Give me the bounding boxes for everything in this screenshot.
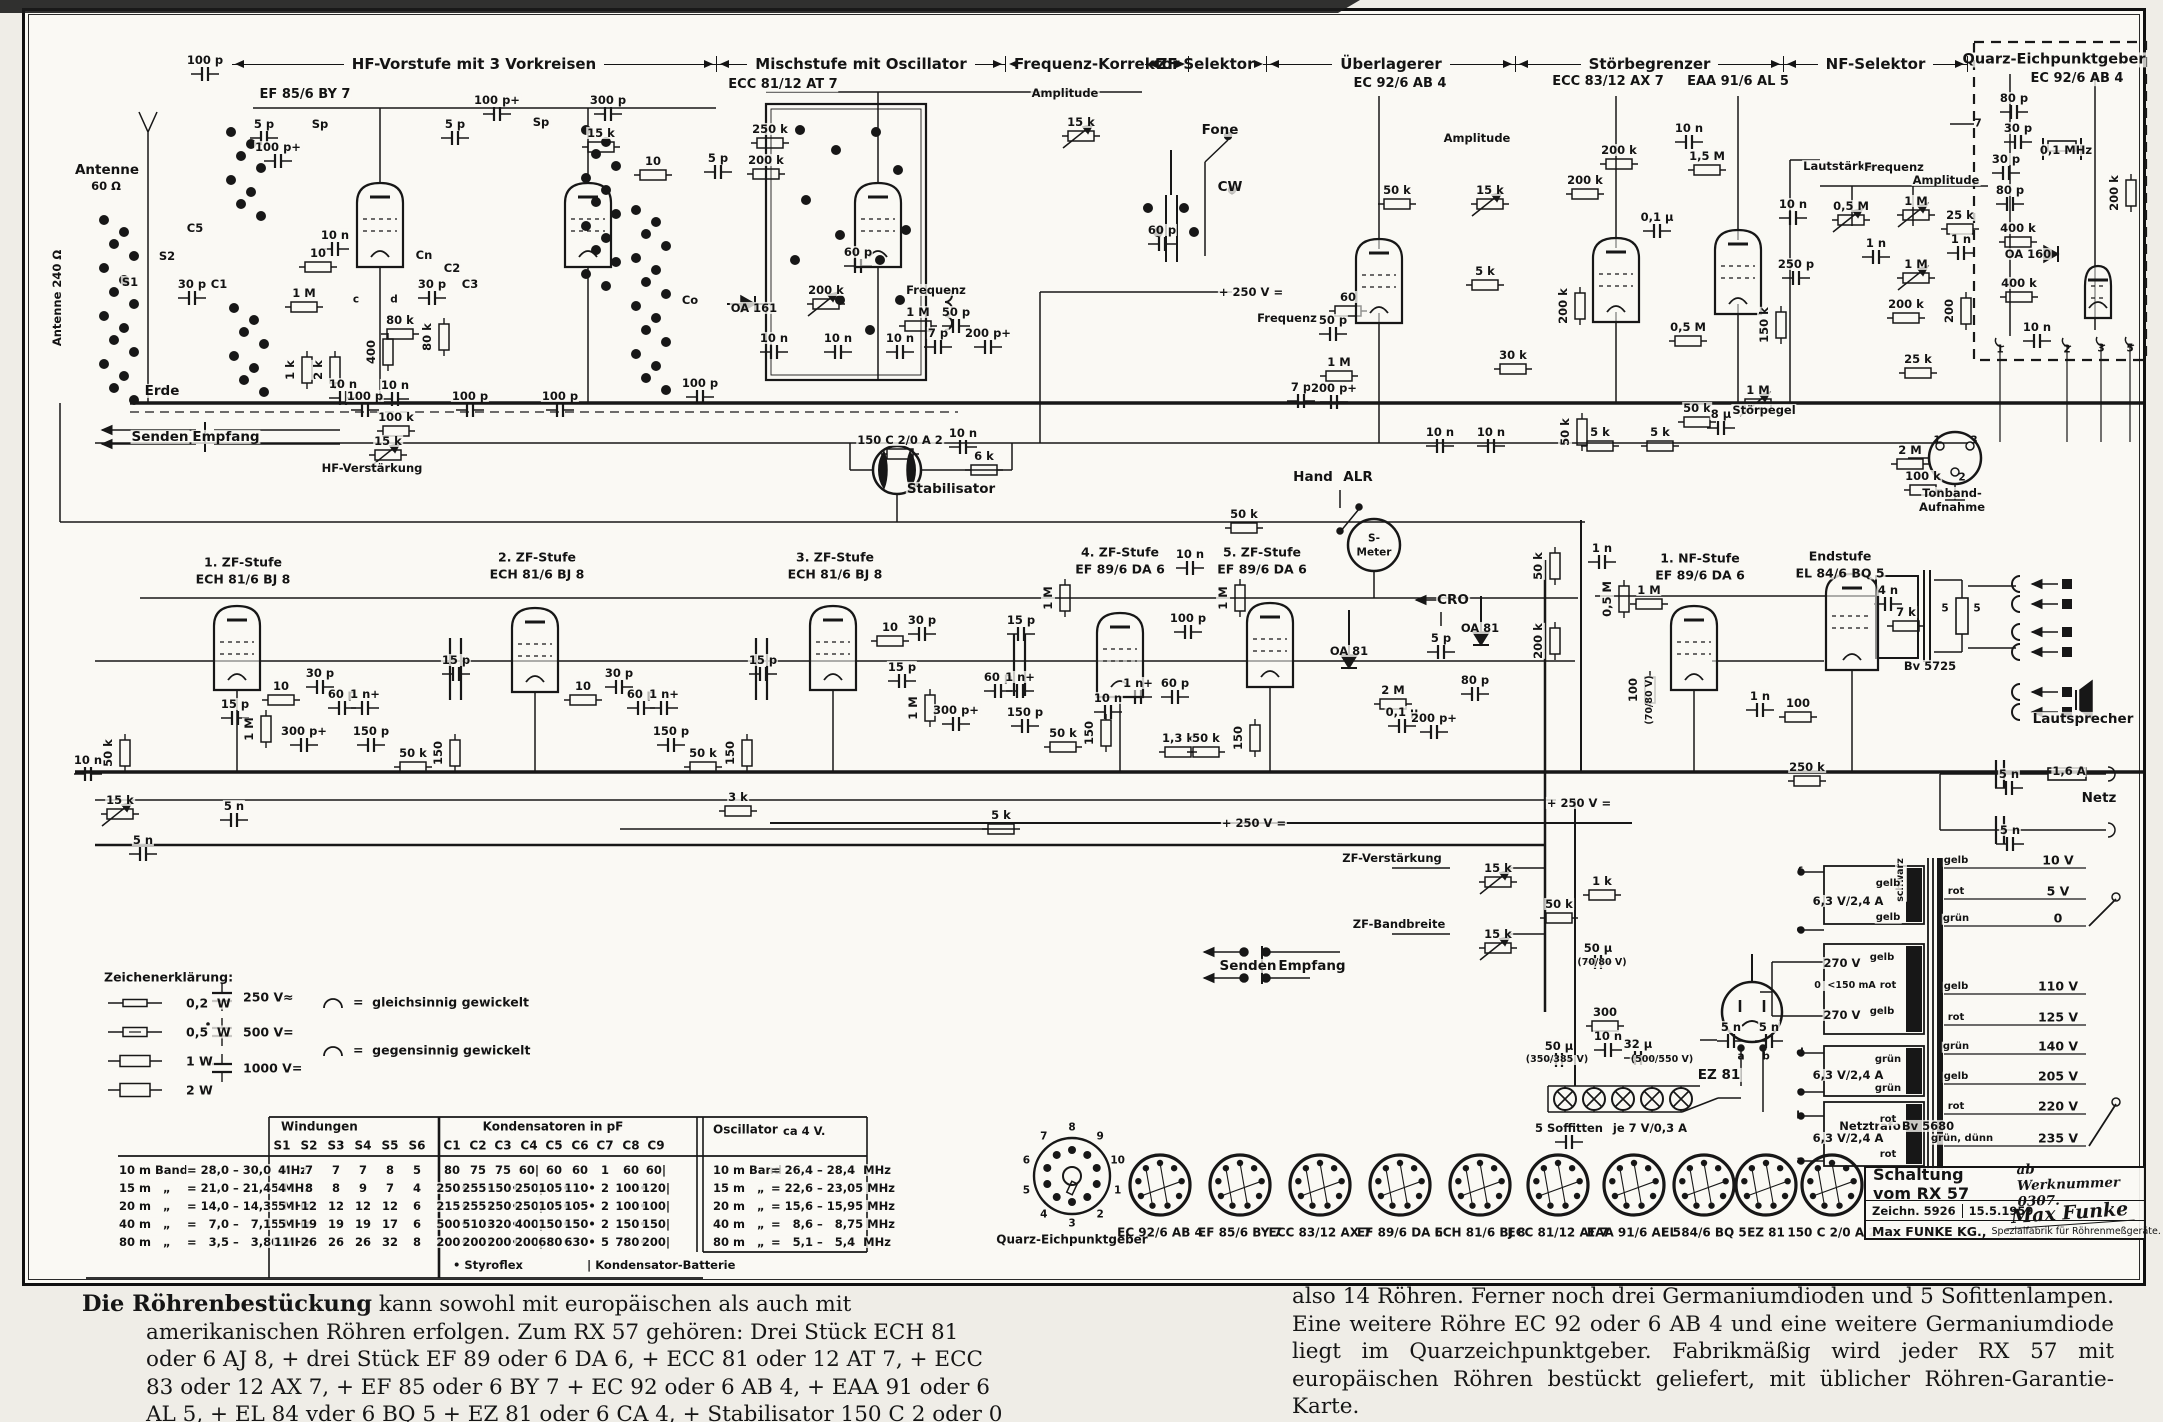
component-label: 10	[272, 680, 290, 692]
section-label: ZF-Selektor	[1148, 55, 1262, 73]
component-label: 15 p	[220, 698, 250, 710]
socket-pin-number: 6	[1022, 1156, 1031, 1167]
component-label: 50 k	[1048, 727, 1078, 739]
legend-capacitor-label: 500 V=	[242, 1025, 295, 1038]
component-label: 60 p	[843, 246, 873, 258]
legend-winding-label: = gleichsinnig gewickelt	[352, 995, 530, 1008]
wire-color-label: grün	[1874, 1084, 1902, 1095]
component-label: Quarz-Eichpunktgeber	[1961, 52, 2146, 67]
component-label: 15 k	[1483, 928, 1513, 940]
component-label: Empfang	[191, 430, 260, 444]
osc-band-name: 20 m „	[712, 1200, 766, 1212]
wire-color-label: gelb	[1943, 982, 1970, 993]
legend-capacitor-label: 250 V≈	[242, 990, 295, 1003]
component-label: 6,3 V/2,4 A	[1812, 895, 1885, 907]
kondensator-value: 630•	[563, 1236, 596, 1248]
component-label: Antenne	[74, 163, 140, 177]
pin-label: 5	[1940, 603, 1949, 614]
component-label: 30 p	[2003, 122, 2033, 134]
component-label: 1 n	[1950, 233, 1972, 245]
component-label: 140 V	[2037, 1039, 2079, 1052]
pin-label: 2	[1957, 472, 1966, 483]
component-label: OA 81	[1329, 645, 1369, 657]
component-label: 10	[309, 247, 327, 259]
component-label: 15 k	[1066, 116, 1096, 128]
component-label: HF-Verstärkung	[321, 462, 424, 474]
component-label: 3 k	[727, 791, 749, 803]
wire-color-label: rot	[1879, 1150, 1898, 1161]
firm-name: Max FUNKE KG.,	[1872, 1224, 1986, 1239]
footer-paragraph-right: also 14 Röhren. Ferner noch drei Germani…	[1292, 1283, 2114, 1421]
component-label: 7 p	[927, 327, 949, 339]
windungen-value: 12	[300, 1200, 318, 1212]
band-name: 80 m „	[118, 1236, 172, 1248]
component-label: 60 p	[1160, 677, 1190, 689]
windungen-value: 7	[331, 1164, 341, 1176]
wire-color-label: gelb	[1875, 913, 1902, 924]
legend-resistor-label: 0,5 W	[185, 1025, 232, 1038]
table-header-osc-voltage: ca 4 V.	[782, 1125, 826, 1137]
footer-paragraph-left: Die Röhrenbestückung kann sowohl mit eur…	[82, 1290, 1012, 1422]
component-label: 5 n	[1998, 768, 2020, 780]
component-label: 100 p	[541, 390, 579, 402]
pin-label: 3	[2096, 343, 2105, 354]
table-col-header: C1	[442, 1140, 461, 1153]
windungen-value: 9	[358, 1182, 368, 1194]
component-label: 2. ZF-Stufe	[497, 550, 577, 563]
arrow-right-icon	[1718, 64, 1783, 65]
windungen-value: 7	[358, 1164, 368, 1176]
component-label: + 250 V =	[1218, 286, 1284, 298]
component-label: Amplitude	[1443, 132, 1512, 144]
legend-resistor-label: 1 W	[185, 1054, 214, 1067]
component-label: 100 p+	[254, 141, 302, 153]
pin-label: b	[1795, 1110, 1805, 1121]
component-label: 50 k	[1191, 732, 1221, 744]
component-label: ECC 83/12 AX 7	[1551, 75, 1665, 89]
component-label: + 250 V =	[1221, 817, 1287, 829]
component-label: 200 k	[747, 154, 785, 166]
wire-color-label: grün, dünn	[1930, 1134, 1994, 1145]
wire-color-label: rot	[1947, 1102, 1966, 1113]
component-label: CRO	[1436, 593, 1470, 607]
component-label: OA 161	[730, 302, 778, 314]
component-label: 1. ZF-Stufe	[203, 555, 283, 568]
windungen-value: 7	[385, 1182, 395, 1194]
component-label: Endstufe	[1808, 549, 1873, 562]
arrow-left-icon	[1784, 64, 1818, 65]
section-arrow: Frequenz-Korrektor	[1006, 56, 1145, 72]
pin-label: a	[1736, 1051, 1745, 1062]
component-label: ECH 81/6 BJ 8	[489, 567, 586, 580]
wire-color-label: rot	[1879, 1115, 1898, 1126]
component-label: 10 n	[948, 427, 978, 439]
section-arrow: Überlagerer	[1267, 56, 1516, 72]
kondensator-value: 120|	[641, 1182, 671, 1194]
component-label: 0,1 MHz	[2039, 144, 2093, 156]
wire-color-label: grün	[1942, 914, 1970, 925]
socket-label: EZ 81	[1746, 1227, 1786, 1240]
component-label: 1 n	[1591, 542, 1613, 554]
component-label: 2 M	[1380, 684, 1405, 696]
component-label: EZ 81	[1697, 1068, 1742, 1082]
table-col-header: C6	[570, 1140, 589, 1153]
component-label: 1 M	[1903, 258, 1928, 270]
component-label: 10 n	[380, 379, 410, 391]
band-frequency: = 21,0 – 21,45 MHz	[186, 1182, 312, 1194]
component-label: 30 k	[1498, 349, 1528, 361]
socket-pin-number: 7	[1039, 1132, 1048, 1143]
component-label: 1 k	[1591, 875, 1613, 887]
arrow-right-icon	[1933, 64, 1967, 65]
component-label: 250 p	[1777, 258, 1815, 270]
component-label: 50 k	[1382, 184, 1412, 196]
windungen-value: 6	[412, 1200, 422, 1212]
component-label: 1 M	[1636, 584, 1661, 596]
drawing-number: Zeichn. 5926	[1866, 1204, 1963, 1218]
wire-color-label: rot	[1947, 1013, 1966, 1024]
table-col-header: C5	[544, 1140, 563, 1153]
component-label: 200 k	[1556, 288, 1570, 324]
component-label: 6,3 V/2,4 A	[1812, 1132, 1885, 1144]
component-label: EF 85/6 BY 7	[259, 88, 352, 102]
kondensator-value: 60	[545, 1164, 563, 1176]
component-label: Co	[681, 294, 699, 306]
section-arrow: ZF-Selektor	[1145, 56, 1267, 72]
windungen-value: 12	[381, 1200, 399, 1212]
component-label: S1	[121, 276, 139, 288]
band-frequency: = 28,0 – 30,0 MHz	[186, 1164, 308, 1176]
component-label: + 250 V =	[1546, 797, 1612, 809]
component-label: 4 n	[1877, 584, 1899, 596]
component-label: ECH 81/6 BJ 8	[787, 567, 884, 580]
component-label: 5 k	[1474, 265, 1496, 277]
section-label: NF-Selektor	[1818, 55, 1934, 73]
kondensator-value: 5	[600, 1236, 610, 1248]
footer-left-heading: Die Röhrenbestückung	[82, 1291, 372, 1317]
component-label: 10 n	[1778, 198, 1808, 210]
component-label: 200	[1942, 299, 1956, 323]
component-label: 10 n	[1476, 426, 1506, 438]
component-label: Bv 5680	[1901, 1120, 1955, 1132]
component-label: (500/550 V)	[1630, 1055, 1694, 1065]
component-label: 1. NF-Stufe	[1659, 551, 1740, 564]
component-label: 10 n	[1425, 426, 1455, 438]
component-label: 5 n	[223, 800, 245, 812]
component-label: 1 M	[1903, 195, 1928, 207]
component-label: Cn	[415, 249, 434, 261]
table-col-header: S6	[408, 1140, 427, 1153]
table-col-header: S4	[354, 1140, 373, 1153]
section-arrow: Mischstufe mit Oscillator	[717, 56, 1006, 72]
annotation-layer: HF-Vorstufe mit 3 VorkreisenMischstufe m…	[0, 0, 2163, 1422]
component-label: 6,3 V/2,4 A	[1812, 1069, 1885, 1081]
component-label: 5 k	[1649, 426, 1671, 438]
windungen-value: 7	[304, 1164, 314, 1176]
socket-pin-number: 8	[1067, 1122, 1076, 1133]
component-label: 30 p	[417, 278, 447, 290]
pin-label: 7	[1973, 118, 1982, 129]
component-label: 10	[574, 680, 592, 692]
windungen-value: 26	[327, 1236, 345, 1248]
socket-pin-number: 10	[1109, 1156, 1126, 1167]
wire-color-label: grün	[1874, 1055, 1902, 1066]
socket-pin-number: 3	[1067, 1218, 1076, 1229]
component-label: 1 M	[1745, 384, 1770, 396]
pin-label: 5	[1972, 603, 1981, 614]
arrow-left-icon	[232, 64, 344, 65]
component-label: 50 k	[1544, 898, 1574, 910]
component-label: 5 k	[990, 809, 1012, 821]
component-label: 150	[723, 741, 737, 765]
windungen-value: 8	[385, 1164, 395, 1176]
component-label: 15 k	[1475, 184, 1505, 196]
component-label: 150 p	[652, 725, 690, 737]
component-label: 10 n	[1175, 548, 1205, 560]
component-label: 6 k	[973, 450, 995, 462]
component-label: 200 k	[1566, 174, 1604, 186]
component-label: 0 <150 mA	[1813, 981, 1877, 991]
table-col-header: C2	[468, 1140, 487, 1153]
table-col-header: S5	[381, 1140, 400, 1153]
component-label: 150 p	[352, 725, 390, 737]
component-label: 15 p	[748, 654, 778, 666]
socket-pin-number: 5	[1022, 1185, 1031, 1196]
component-label: 1 n+	[1004, 671, 1036, 683]
kondensator-value: 80	[443, 1164, 461, 1176]
table-header-oscillator: Oscillator	[712, 1124, 779, 1137]
wire-color-label: gelb	[1869, 1007, 1896, 1018]
component-label: 1 n+	[349, 688, 381, 700]
wire-color-label: rot	[1879, 981, 1898, 992]
pin-label: 5	[2125, 343, 2134, 354]
component-label: 1 n+	[1122, 677, 1154, 689]
component-label: 1 M	[905, 306, 930, 318]
component-label: 1,3 k	[1161, 732, 1195, 744]
component-label: Sp	[532, 116, 551, 128]
pin-label: 3	[1969, 435, 1978, 446]
osc-frequency: = 8,6 – 8,75 MHz	[770, 1218, 896, 1230]
arrow-left-icon	[1516, 64, 1581, 65]
component-label: 200 k	[1600, 144, 1638, 156]
component-label: 300 p+	[280, 725, 328, 737]
component-label: 50 k	[398, 747, 428, 759]
component-label: 5 p	[1430, 632, 1452, 644]
component-label: 235 V	[2037, 1131, 2079, 1144]
component-label: C2	[443, 262, 461, 274]
component-label: 10	[644, 155, 662, 167]
windungen-value: 5	[277, 1200, 287, 1212]
component-label: 270 V	[1823, 957, 1862, 969]
component-label: Amplitude	[1031, 87, 1100, 99]
component-label: 5 p	[444, 118, 466, 130]
component-label: 250 k	[1788, 761, 1826, 773]
component-label: 400	[364, 340, 378, 364]
component-label: 10 n	[885, 332, 915, 344]
arrow-left-icon	[717, 64, 747, 65]
legend-capacitor-label: 1000 V=	[242, 1061, 303, 1074]
table-col-header: C8	[621, 1140, 640, 1153]
wire-color-label: rot	[1947, 887, 1966, 898]
windungen-value: 11	[273, 1236, 291, 1248]
component-label: 7 k	[1895, 606, 1917, 618]
component-label: 1,5 M	[1688, 150, 1726, 162]
component-label: 8 µ	[1710, 408, 1732, 420]
component-label: 15 p	[1006, 614, 1036, 626]
component-label: Tonband-	[1921, 487, 1983, 499]
component-label: Stabilisator	[906, 482, 996, 496]
component-label: Empfang	[1277, 959, 1346, 973]
table-col-header: S2	[300, 1140, 319, 1153]
component-label: 110 V	[2037, 979, 2079, 992]
schematic-page: HF-Vorstufe mit 3 VorkreisenMischstufe m…	[0, 0, 2163, 1422]
component-label: 150	[1082, 721, 1096, 745]
component-label: 60	[1339, 291, 1357, 303]
component-label: (350/385 V)	[1525, 1055, 1589, 1065]
component-label: 25 k	[1903, 353, 1933, 365]
component-label: 200 k	[1531, 623, 1545, 659]
windungen-value: 4	[412, 1182, 422, 1194]
component-label: 80 p	[1460, 674, 1490, 686]
component-label: 10 n	[1093, 692, 1123, 704]
component-label: Amplitude	[1912, 174, 1981, 186]
osc-band-name: 15 m „	[712, 1182, 766, 1194]
component-label: 4. ZF-Stufe	[1080, 545, 1160, 558]
component-label: 10 n	[320, 229, 350, 241]
osc-band-name: 80 m „	[712, 1236, 766, 1248]
band-name: 40 m „	[118, 1218, 172, 1230]
section-label: Störbegrenzer	[1581, 55, 1719, 73]
component-label: Frequenz	[1256, 312, 1318, 324]
component-label: Sp	[311, 118, 330, 130]
pin-label: c	[1796, 1086, 1804, 1097]
component-label: (70/80 V)	[1576, 958, 1627, 968]
component-label: (70/80 V)	[1644, 675, 1656, 724]
component-label: 1 n	[1865, 237, 1887, 249]
component-label: 1,6 A	[2051, 765, 2086, 777]
band-frequency: = 3,5 – 3,80 MHz	[186, 1236, 312, 1248]
socket-label: EL 84/6 BQ 5	[1660, 1227, 1748, 1240]
component-label: Netz	[2081, 791, 2118, 805]
kondensator-value: 2	[600, 1200, 610, 1212]
component-label: 5 V	[2046, 884, 2071, 897]
component-label: C1	[210, 278, 228, 290]
pin-label: 2	[2062, 344, 2071, 355]
component-label: Bv 5725	[1903, 660, 1957, 672]
component-label: 2 M	[1897, 444, 1922, 456]
component-label: Senden	[131, 430, 190, 444]
component-label: ZF-Bandbreite	[1352, 918, 1447, 930]
band-name: 10 m Band	[118, 1164, 189, 1176]
section-arrow: HF-Vorstufe mit 3 Vorkreisen	[232, 56, 717, 72]
component-label: 0,1 µ	[1640, 211, 1675, 223]
table-note-styroflex: • Styroflex	[452, 1259, 524, 1271]
component-label: 150	[1231, 726, 1245, 750]
component-label: 5 n	[1758, 1021, 1780, 1033]
component-label: 10 V	[2041, 853, 2074, 866]
component-label: 100 p	[451, 390, 489, 402]
section-label: Überlagerer	[1332, 55, 1450, 73]
component-label: 10 n	[759, 332, 789, 344]
pin-label: 1	[1932, 435, 1941, 446]
table-note-batterie: | Kondensator-Batterie	[586, 1259, 736, 1271]
component-label: 10 n	[1674, 122, 1704, 134]
component-label: 1 n+	[648, 688, 680, 700]
component-label: 80 p	[1995, 184, 2025, 196]
windungen-value: 19	[300, 1218, 318, 1230]
component-label: 30 p	[305, 667, 335, 679]
windungen-value: 8	[331, 1182, 341, 1194]
component-label: EF 89/6 DA 6	[1074, 562, 1166, 575]
osc-frequency: = 22,6 – 23,05 MHz	[770, 1182, 896, 1194]
component-label: 0,5 M	[1669, 321, 1707, 333]
kondensator-value: 2	[600, 1182, 610, 1194]
component-label: 100 p	[1169, 612, 1207, 624]
kondensator-value: 150•	[563, 1218, 596, 1230]
component-label: 32 µ	[1623, 1038, 1653, 1050]
arrow-right-icon	[604, 64, 716, 65]
component-label: 25 k	[1945, 209, 1975, 221]
component-label: EC 92/6 AB 4	[1353, 77, 1448, 91]
table-col-header: C7	[595, 1140, 614, 1153]
component-label: 200 p+	[1310, 382, 1358, 394]
band-frequency: = 7,0 – 7,15 MHz	[186, 1218, 312, 1230]
windungen-value: 26	[300, 1236, 318, 1248]
windungen-value: 26	[354, 1236, 372, 1248]
component-label: 50 k	[1558, 418, 1572, 446]
component-label: 150	[431, 741, 445, 765]
component-label: 220 V	[2037, 1099, 2079, 1112]
component-label: 1 M	[906, 696, 920, 719]
component-label: C5	[186, 222, 204, 234]
pin-label: Meter	[1356, 547, 1393, 558]
windungen-value: 8	[304, 1182, 314, 1194]
component-label: 100 p+	[473, 94, 521, 106]
component-label: ECC 81/12 AT 7	[727, 78, 838, 92]
component-label: 1 M	[291, 287, 316, 299]
component-label: CW	[1217, 180, 1244, 194]
component-label: 100	[1785, 697, 1811, 709]
arrow-right-icon	[975, 64, 1005, 65]
component-label: S2	[158, 250, 176, 262]
component-label: EL 84/6 BQ 5	[1794, 566, 1885, 579]
component-label: 0,5 M	[1600, 581, 1614, 617]
kondensator-value: 200|	[641, 1236, 671, 1248]
component-label: 1 M	[242, 717, 256, 740]
component-label: ALR	[1342, 470, 1373, 484]
osc-band-name: 40 m „	[712, 1218, 766, 1230]
component-label: 1 M	[1041, 586, 1055, 609]
component-label: OA 81	[1460, 622, 1500, 634]
arrow-left-icon	[1145, 64, 1148, 65]
windungen-value: 17	[381, 1218, 399, 1230]
quarz-socket-label: Quarz-Eichpunktgeber	[995, 1234, 1148, 1247]
component-label: 5 Soffitten	[1534, 1122, 1604, 1134]
band-name: 20 m „	[118, 1200, 172, 1212]
band-name: 15 m „	[118, 1182, 172, 1194]
component-label: 5 n	[1999, 824, 2021, 836]
kondensator-value: 60	[622, 1164, 640, 1176]
component-label: 400 k	[2000, 277, 2038, 289]
component-label: 0,5 M	[1832, 200, 1870, 212]
table-header-windungen: Windungen	[280, 1121, 359, 1134]
wire-color-label: gelb	[1875, 879, 1902, 890]
component-label: 5 k	[1589, 426, 1611, 438]
kondensator-value: 150|	[641, 1218, 671, 1230]
component-label: 300 p	[589, 94, 627, 106]
component-label: 50 k	[1682, 402, 1712, 414]
table-col-header: C9	[646, 1140, 665, 1153]
